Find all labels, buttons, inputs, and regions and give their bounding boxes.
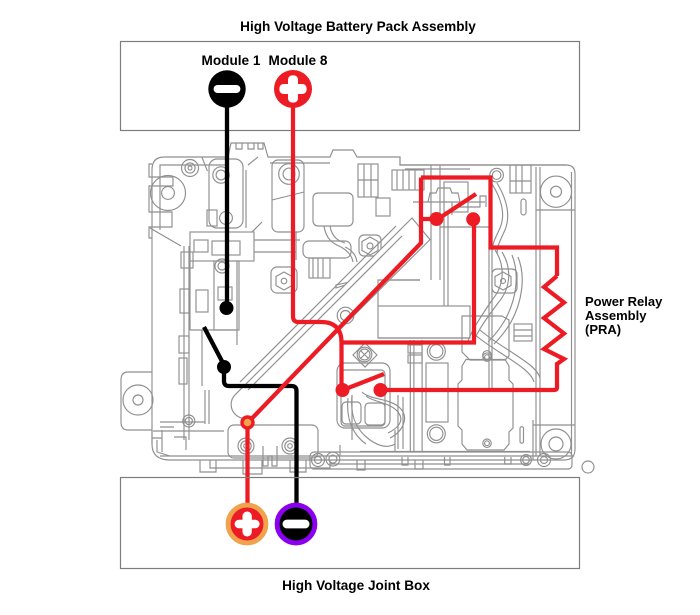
svg-text:High Voltage Battery Pack Asse: High Voltage Battery Pack Assembly — [240, 19, 476, 34]
svg-text:(PRA): (PRA) — [585, 322, 621, 337]
svg-text:Power Relay: Power Relay — [585, 294, 663, 309]
svg-text:High Voltage Joint Box: High Voltage Joint Box — [282, 578, 430, 593]
svg-text:Module 8: Module 8 — [269, 53, 328, 68]
svg-text:Module 1: Module 1 — [202, 53, 261, 68]
svg-text:Assembly: Assembly — [585, 308, 647, 323]
